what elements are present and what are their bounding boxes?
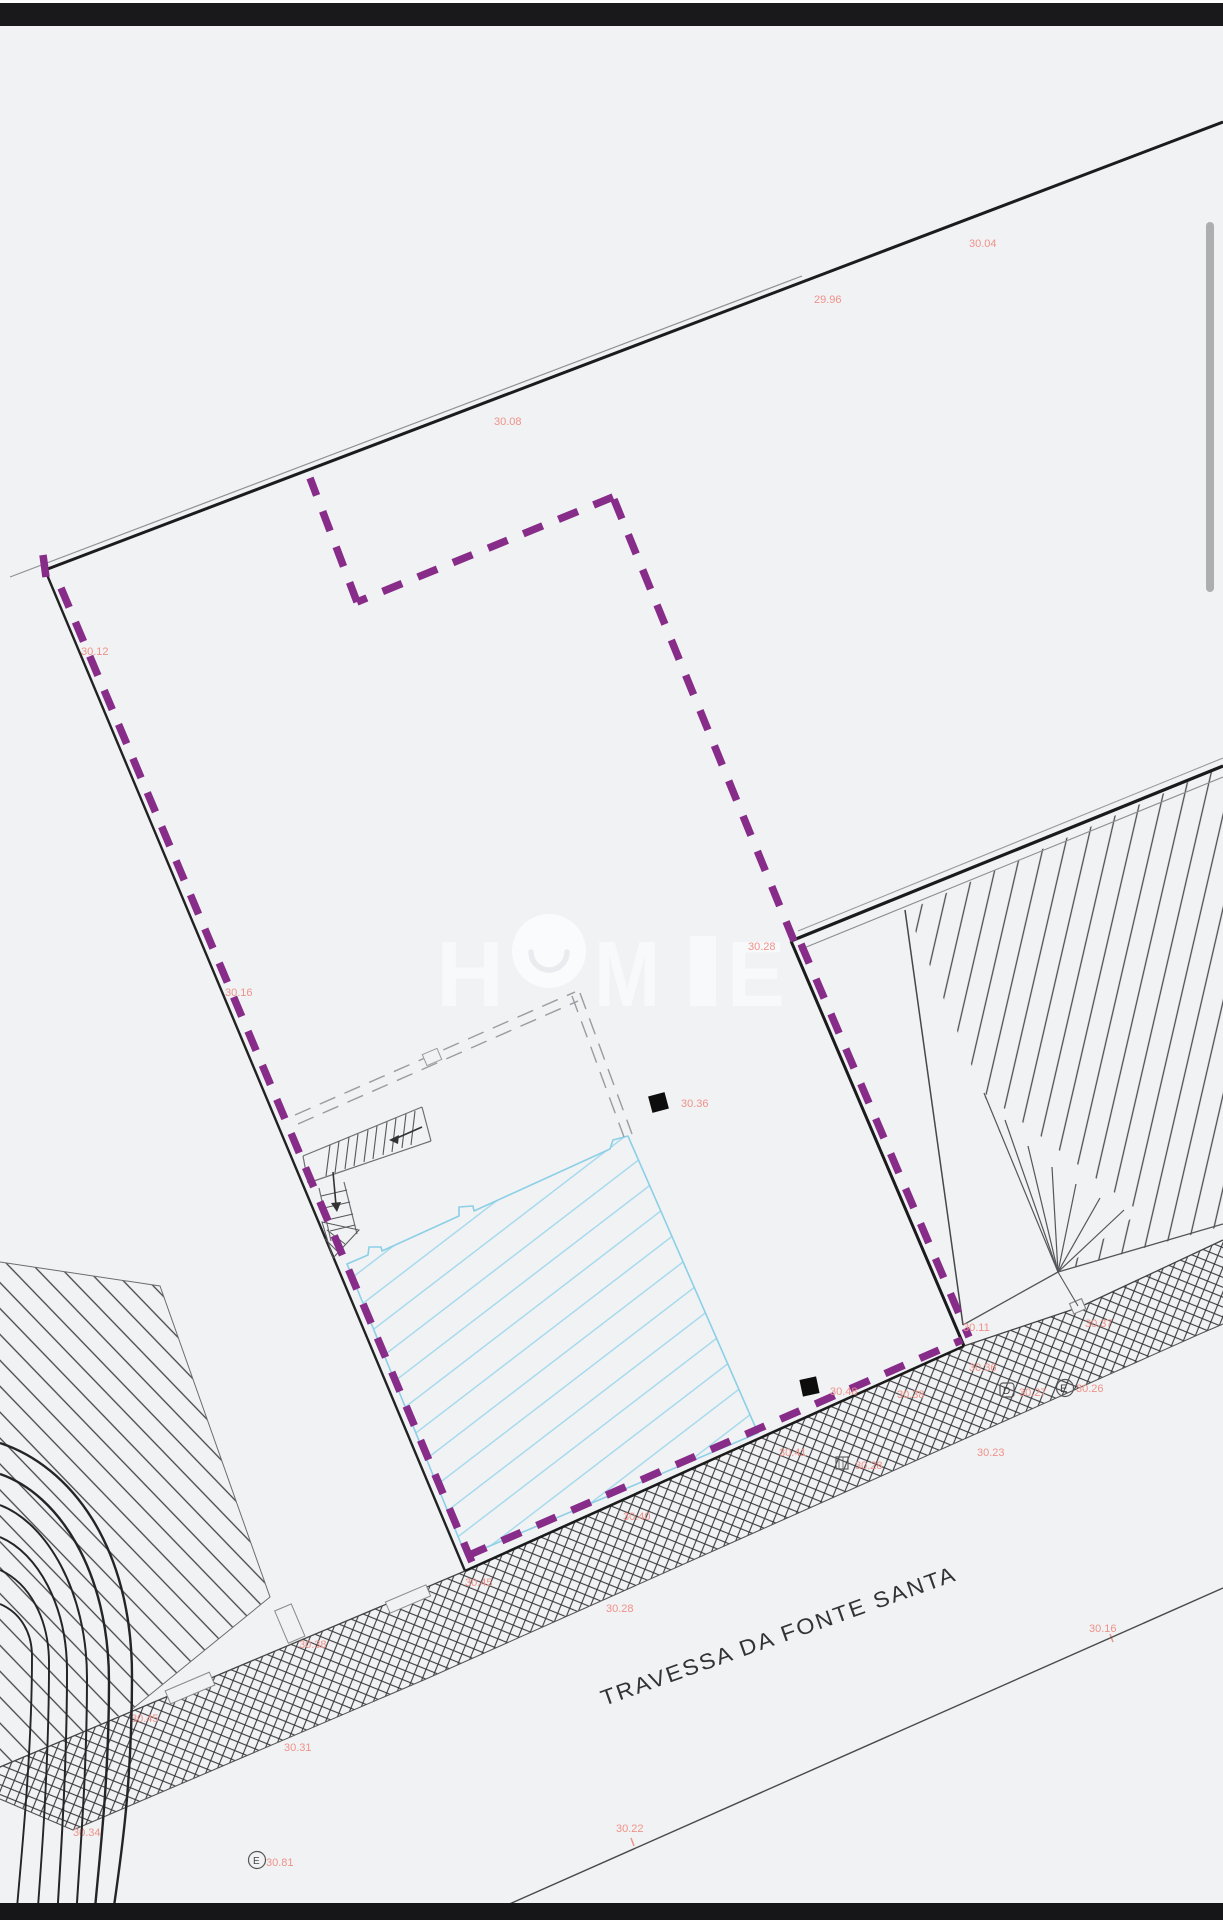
svg-text:30.38: 30.38: [897, 1389, 925, 1401]
svg-text:30.81: 30.81: [266, 1857, 294, 1869]
svg-text:30.36: 30.36: [681, 1098, 709, 1110]
svg-text:30.04: 30.04: [969, 238, 997, 250]
svg-text:30.40: 30.40: [623, 1511, 651, 1523]
svg-text:30.22: 30.22: [616, 1823, 644, 1835]
svg-text:30.41: 30.41: [779, 1447, 807, 1459]
svg-text:30.16: 30.16: [225, 987, 253, 999]
svg-text:30.28: 30.28: [855, 1460, 883, 1472]
svg-text:30.08: 30.08: [494, 416, 522, 428]
svg-text:30.16: 30.16: [1089, 1623, 1117, 1635]
svg-text:E: E: [253, 1856, 260, 1867]
svg-text:30.31: 30.31: [284, 1742, 312, 1754]
svg-text:H: H: [436, 922, 504, 1026]
svg-text:30.26: 30.26: [1076, 1383, 1104, 1395]
svg-text:30.38: 30.38: [299, 1639, 327, 1651]
svg-text:29.96: 29.96: [814, 294, 842, 306]
svg-text:D: D: [1003, 1386, 1010, 1397]
svg-text:30.23: 30.23: [977, 1447, 1005, 1459]
svg-text:30.27: 30.27: [1019, 1387, 1047, 1399]
svg-text:30.12: 30.12: [81, 646, 109, 658]
svg-text:M: M: [594, 922, 660, 1026]
svg-text:30.11: 30.11: [963, 1322, 990, 1334]
svg-text:30.28: 30.28: [606, 1603, 634, 1615]
svg-text:30.45: 30.45: [465, 1577, 493, 1589]
svg-text:E: E: [727, 922, 785, 1026]
svg-text:30.28: 30.28: [748, 941, 776, 953]
svg-text:30.36: 30.36: [969, 1362, 997, 1374]
svg-text:30.48: 30.48: [830, 1386, 858, 1398]
svg-text:30.34: 30.34: [73, 1827, 101, 1839]
svg-text:30.37: 30.37: [1085, 1318, 1113, 1330]
svg-text:E: E: [1060, 1383, 1067, 1395]
svg-text:30.45: 30.45: [131, 1713, 159, 1725]
